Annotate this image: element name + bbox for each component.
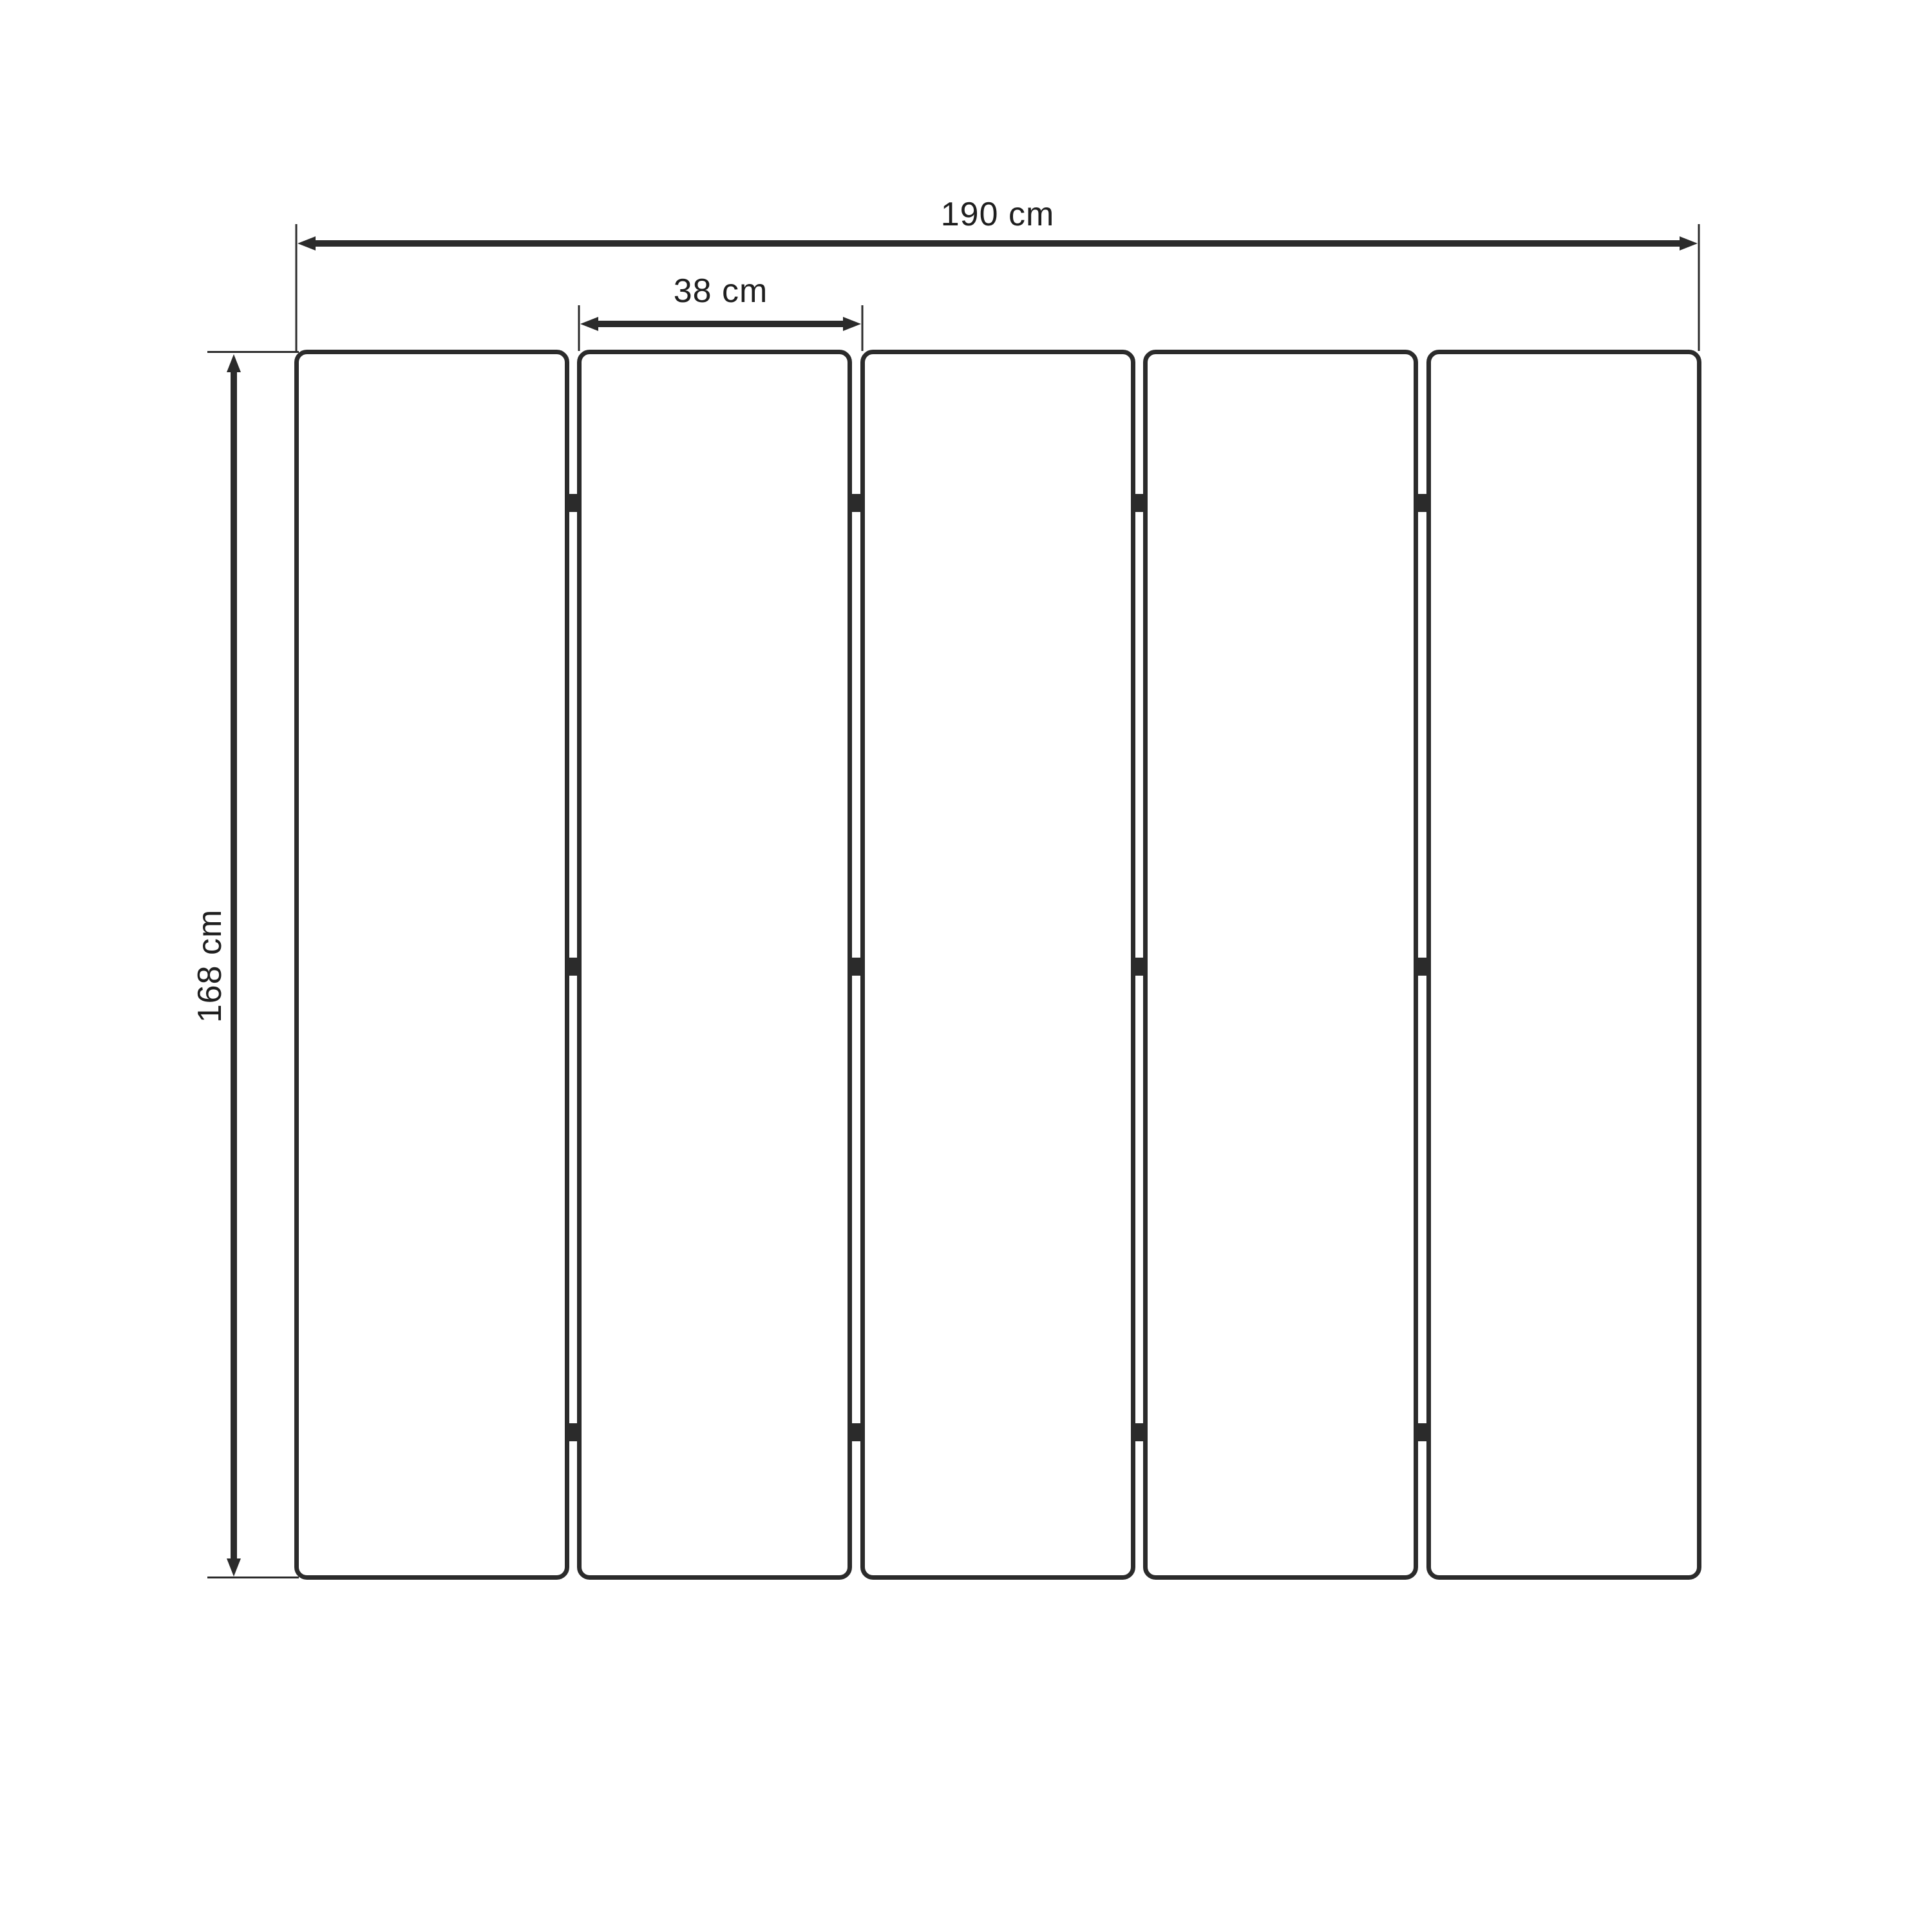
- hinge: [1134, 1423, 1144, 1441]
- diagram-svg: 190 cm 38 cm 168 cm: [0, 0, 1932, 1932]
- hinge: [568, 958, 578, 976]
- dimension-diagram: 190 cm 38 cm 168 cm: [0, 0, 1932, 1932]
- hinge: [1134, 958, 1144, 976]
- hinge: [568, 1423, 578, 1441]
- hinge: [568, 494, 578, 512]
- panel-width-dimension: 38 cm: [579, 272, 862, 351]
- arrowhead-up-icon: [227, 354, 241, 372]
- hinge: [1417, 494, 1428, 512]
- panel-4: [1146, 352, 1416, 1578]
- hinge: [1417, 958, 1428, 976]
- panel-5: [1429, 352, 1700, 1578]
- hinge: [851, 958, 862, 976]
- arrowhead-right-icon: [843, 317, 861, 331]
- total-width-dimension-label: 190 cm: [941, 196, 1055, 233]
- hinge: [851, 1423, 862, 1441]
- panel-width-dimension-label: 38 cm: [674, 272, 768, 310]
- arrowhead-down-icon: [227, 1558, 241, 1577]
- height-dimension: 168 cm: [191, 352, 299, 1578]
- hinge: [1134, 494, 1144, 512]
- panel-3: [863, 352, 1133, 1578]
- height-dimension-label: 168 cm: [191, 909, 229, 1023]
- total-width-dimension: 190 cm: [296, 196, 1699, 351]
- hinge: [851, 494, 862, 512]
- panels: [297, 352, 1700, 1578]
- panel-2: [580, 352, 850, 1578]
- arrowhead-left-icon: [298, 236, 316, 251]
- arrowhead-left-icon: [580, 317, 598, 331]
- hinge: [1417, 1423, 1428, 1441]
- panel-1: [297, 352, 567, 1578]
- arrowhead-right-icon: [1680, 236, 1698, 251]
